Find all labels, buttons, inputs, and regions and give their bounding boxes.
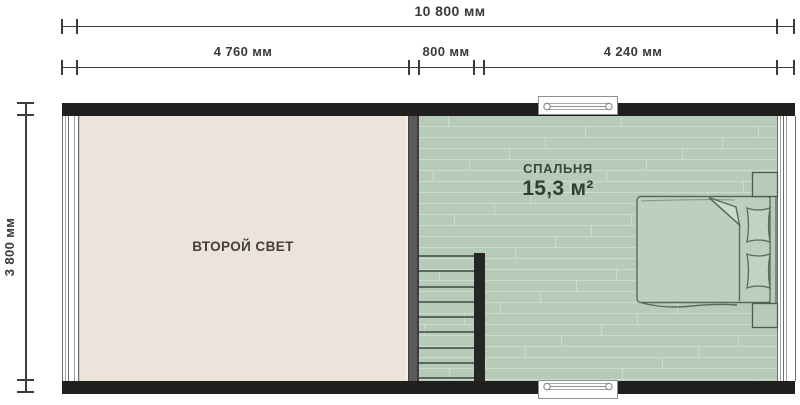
plank-joint — [713, 292, 714, 302]
dim-tick — [17, 114, 34, 116]
plank-joint — [591, 226, 592, 236]
stair-tread — [419, 286, 474, 288]
stair-wall — [474, 253, 485, 381]
stair-tread — [419, 377, 474, 379]
plank-joint — [698, 347, 699, 357]
plank-joint — [576, 281, 577, 291]
dimension-segment-2: 800 мм — [346, 44, 546, 59]
wall-bottom — [62, 381, 795, 394]
plank-joint — [494, 204, 495, 214]
dimension-segment-1: 4 760 мм — [143, 44, 343, 59]
plank-joint — [500, 303, 501, 313]
plank-joint — [485, 358, 486, 368]
plank-joint — [561, 336, 562, 346]
stair-tread — [419, 301, 474, 303]
dim-tick — [61, 19, 63, 34]
dim-tick — [17, 391, 34, 393]
dimension-line-segments — [62, 67, 795, 69]
dim-tick — [61, 60, 63, 75]
plank-joint — [631, 215, 632, 225]
plank-joint — [692, 248, 693, 258]
dim-tick — [418, 60, 420, 75]
plank-joint — [601, 325, 602, 335]
plank-joint — [637, 314, 638, 324]
plank-joint — [728, 237, 729, 247]
plank-joint — [616, 270, 617, 280]
second-light-label: ВТОРОЙ СВЕТ — [143, 239, 343, 254]
floor-plan: 10 800 мм 4 760 мм 800 мм 4 240 мм 3 800… — [0, 0, 800, 405]
dim-tick — [776, 19, 778, 34]
plank-joint — [540, 292, 541, 302]
plank-joint — [758, 127, 759, 137]
dim-tick — [408, 60, 410, 75]
plank-joint — [454, 215, 455, 225]
stair-tread — [419, 331, 474, 333]
wall-top — [62, 103, 795, 116]
plank-joint — [722, 138, 723, 148]
dim-tick — [17, 102, 34, 104]
plank-joint — [768, 226, 769, 236]
window-wall-right — [777, 116, 796, 381]
bedroom-area-label: 15,3 м² — [478, 177, 638, 201]
plank-joint — [509, 149, 510, 159]
plank-joint — [555, 237, 556, 247]
plank-joint — [545, 138, 546, 148]
dim-tick — [17, 379, 34, 381]
plank-joint — [525, 347, 526, 357]
plank-joint — [448, 116, 449, 126]
plank-joint — [652, 259, 653, 269]
plank-joint — [707, 193, 708, 203]
plank-joint — [433, 171, 434, 181]
dim-tick — [793, 60, 795, 75]
dim-tick — [793, 19, 795, 34]
stair-tread — [419, 347, 474, 349]
stairs — [419, 255, 474, 379]
plank-joint — [682, 149, 683, 159]
plank-joint — [585, 127, 586, 137]
plank-joint — [667, 204, 668, 214]
plank-joint — [743, 182, 744, 192]
stair-tread — [419, 255, 474, 257]
plank-joint — [646, 160, 647, 170]
plank-joint — [621, 116, 622, 126]
plank-joint — [622, 369, 623, 379]
plank-joint — [515, 248, 516, 258]
dim-tick — [76, 19, 78, 34]
stair-tread — [419, 316, 474, 318]
dim-tick — [76, 60, 78, 75]
plank-joint — [662, 358, 663, 368]
plank-joint — [753, 281, 754, 291]
dimension-height: 3 800 мм — [2, 207, 18, 287]
dimension-total-width: 10 800 мм — [350, 3, 550, 19]
stair-tread — [419, 362, 474, 364]
dimension-segment-3: 4 240 мм — [533, 44, 733, 59]
dimension-line-total — [62, 26, 795, 28]
dimension-line-height — [25, 103, 27, 392]
plank-joint — [677, 303, 678, 313]
partition-wall — [406, 116, 419, 381]
dim-tick — [483, 60, 485, 75]
dim-tick — [776, 60, 778, 75]
plank-joint — [469, 160, 470, 170]
bedroom-label: СПАЛЬНЯ — [478, 161, 638, 176]
window-wall-left — [62, 116, 79, 381]
stair-tread — [419, 270, 474, 272]
dim-tick — [473, 60, 475, 75]
plank-joint — [738, 336, 739, 346]
